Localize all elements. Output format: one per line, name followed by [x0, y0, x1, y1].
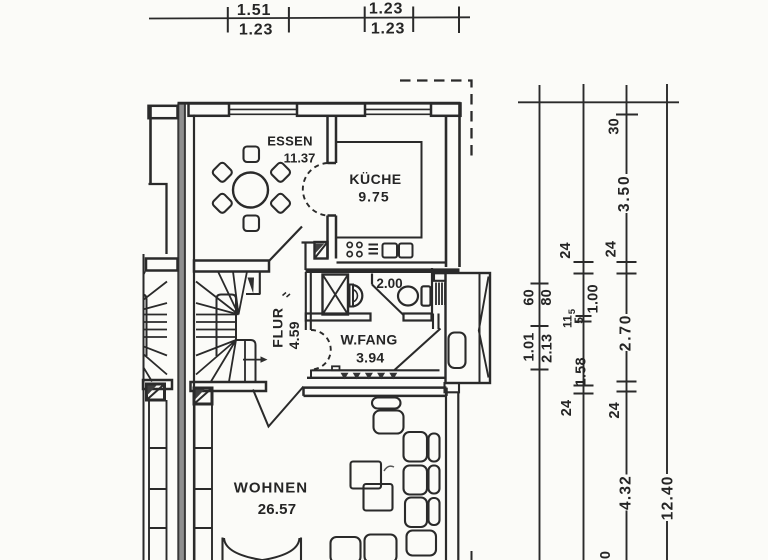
svg-text:24: 24: [558, 242, 574, 259]
svg-text:1.01: 1.01: [522, 332, 538, 361]
svg-text:4.32: 4.32: [618, 475, 635, 510]
svg-text:11: 11: [561, 315, 575, 328]
svg-text:WOHNEN: WOHNEN: [234, 480, 308, 497]
svg-text:1.23: 1.23: [371, 21, 405, 38]
svg-text:3.50: 3.50: [616, 175, 633, 212]
svg-text:KÜCHE: KÜCHE: [349, 171, 401, 187]
svg-text:W.FANG: W.FANG: [340, 331, 397, 347]
svg-text:30: 30: [607, 118, 623, 135]
svg-text:2.13: 2.13: [540, 334, 556, 363]
svg-text:24: 24: [604, 241, 620, 258]
svg-text:26.57: 26.57: [258, 501, 297, 518]
svg-text:11.37: 11.37: [284, 151, 316, 166]
svg-text:1.00: 1.00: [586, 284, 602, 313]
svg-text:9.75: 9.75: [358, 188, 389, 204]
svg-text:2.00: 2.00: [376, 276, 402, 291]
svg-text:1.58: 1.58: [574, 357, 590, 386]
svg-text:12.40: 12.40: [660, 475, 677, 520]
svg-text:5: 5: [567, 308, 578, 314]
svg-text:2.70: 2.70: [618, 314, 635, 351]
svg-text:3.94: 3.94: [356, 350, 384, 366]
svg-text:80: 80: [539, 289, 555, 306]
svg-text:1.23: 1.23: [239, 22, 273, 39]
svg-text:1.23: 1.23: [369, 1, 403, 18]
svg-text:FLUR: FLUR: [269, 307, 285, 348]
svg-text:60: 60: [522, 289, 538, 306]
svg-text:24: 24: [559, 400, 575, 417]
svg-text:24: 24: [607, 402, 623, 419]
svg-text:1.51: 1.51: [237, 2, 271, 19]
svg-text:4.59: 4.59: [286, 321, 302, 349]
svg-text:0: 0: [598, 551, 614, 559]
svg-text:ESSEN: ESSEN: [267, 133, 313, 148]
